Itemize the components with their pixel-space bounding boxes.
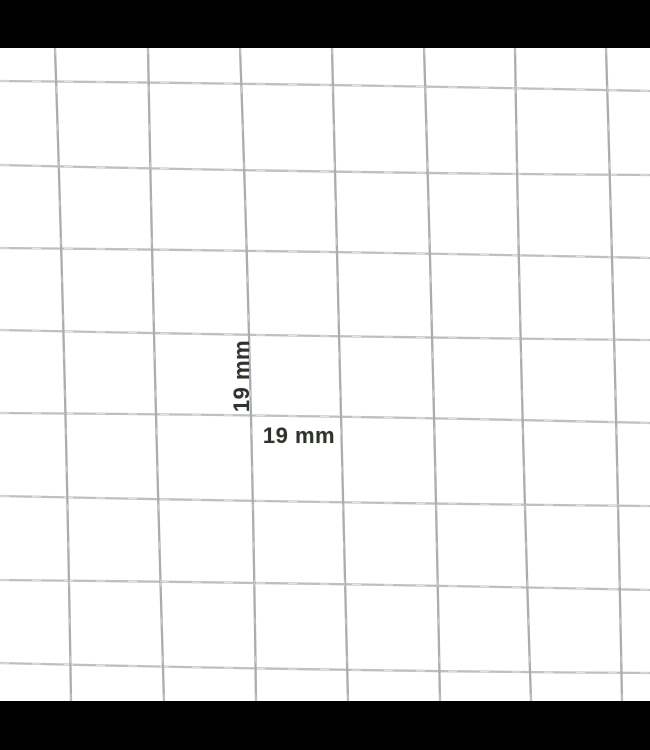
product-photo: 19 mm 19 mm: [0, 48, 650, 701]
product-image-viewport: 19 mm 19 mm: [0, 0, 650, 750]
mesh-height-dimension-label: 19 mm: [229, 340, 255, 412]
top-letterbox-bar: [0, 0, 650, 48]
mesh-width-dimension-label: 19 mm: [263, 423, 335, 449]
bottom-letterbox-bar: [0, 701, 650, 750]
wire-mesh-graphic: [0, 48, 650, 701]
